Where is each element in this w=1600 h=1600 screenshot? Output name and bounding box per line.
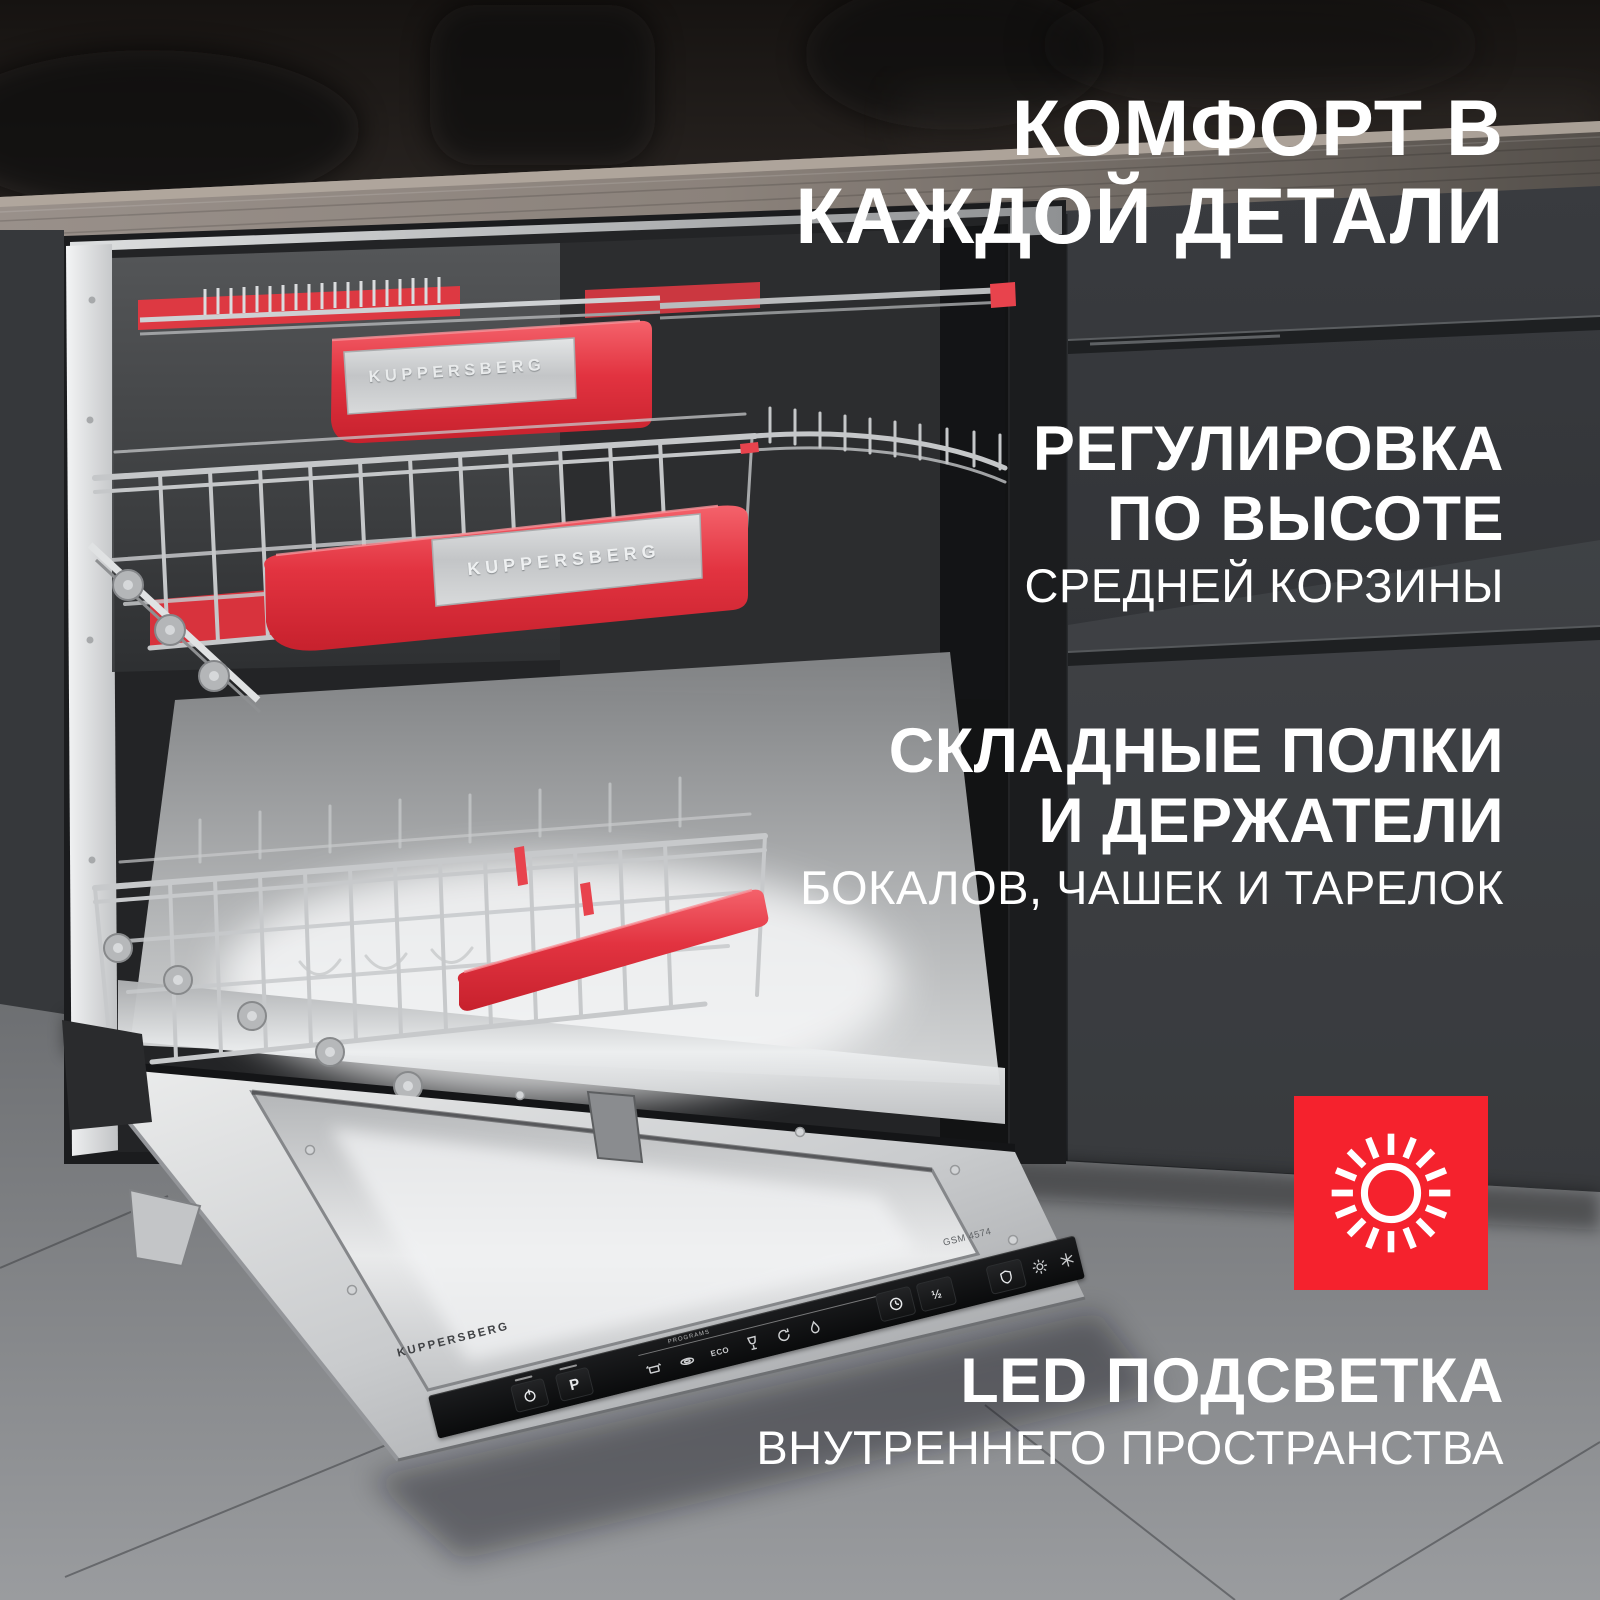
headline-line-1: КОМФОРТ В	[795, 84, 1504, 172]
normal-program-icon	[675, 1347, 699, 1371]
feature-bold-line: СКЛАДНЫЕ ПОЛКИ	[800, 716, 1504, 786]
program-button: P	[555, 1367, 595, 1402]
door-latch	[588, 1092, 642, 1162]
quick-program-icon	[772, 1323, 796, 1347]
wall-left	[0, 230, 64, 1020]
sun-small-icon	[1029, 1256, 1051, 1278]
delay-button	[875, 1286, 917, 1323]
feature-folding-shelves: СКЛАДНЫЕ ПОЛКИ И ДЕРЖАТЕЛИ БОКАЛОВ, ЧАШЕ…	[800, 716, 1504, 916]
snowflake-icon	[1056, 1249, 1078, 1271]
feature-light-line: ВНУТРЕННЕГО ПРОСТРАНСТВА	[756, 1420, 1504, 1476]
power-button	[510, 1378, 550, 1413]
feature-height-adjust: РЕГУЛИРОВКА ПО ВЫСОТЕ СРЕДНЕЙ КОРЗИНЫ	[1024, 414, 1504, 614]
tray-red-cap	[990, 282, 1016, 308]
niche-frame-left	[66, 244, 120, 1156]
shield-icon	[997, 1267, 1016, 1286]
promo-card: P PROGRAMS ECO	[0, 0, 1600, 1600]
power-icon	[520, 1386, 539, 1405]
clock-icon	[885, 1294, 906, 1315]
half-load-button: ½	[915, 1276, 957, 1313]
led-feature-badge	[1294, 1096, 1488, 1290]
feature-light-line: БОКАЛОВ, ЧАШЕК И ТАРЕЛОК	[800, 860, 1504, 916]
intensive-program-icon	[642, 1356, 666, 1380]
feature-bold-line: И ДЕРЖАТЕЛИ	[800, 786, 1504, 856]
rinse-program-icon	[803, 1316, 827, 1340]
hygiene-button	[985, 1258, 1027, 1295]
cabinet-right	[1040, 186, 1600, 1196]
light-indicator	[1029, 1256, 1051, 1278]
feature-led-light: LED ПОДСВЕТКА ВНУТРЕННЕГО ПРОСТРАНСТВА	[756, 1346, 1504, 1476]
blurred-kettle-silhouette	[430, 5, 655, 165]
headline-line-2: КАЖДОЙ ДЕТАЛИ	[795, 172, 1504, 260]
feature-light-line: СРЕДНЕЙ КОРЗИНЫ	[1024, 558, 1504, 614]
headline: КОМФОРТ В КАЖДОЙ ДЕТАЛИ	[795, 84, 1504, 260]
feature-bold-line: ПО ВЫСОТЕ	[1024, 484, 1504, 554]
eco-program-label: ECO	[708, 1339, 732, 1363]
feature-bold-line: РЕГУЛИРОВКА	[1024, 414, 1504, 484]
sun-icon	[1329, 1131, 1453, 1255]
extra-dry-indicator	[1056, 1249, 1078, 1271]
feature-bold-line: LED ПОДСВЕТКА	[756, 1346, 1504, 1416]
